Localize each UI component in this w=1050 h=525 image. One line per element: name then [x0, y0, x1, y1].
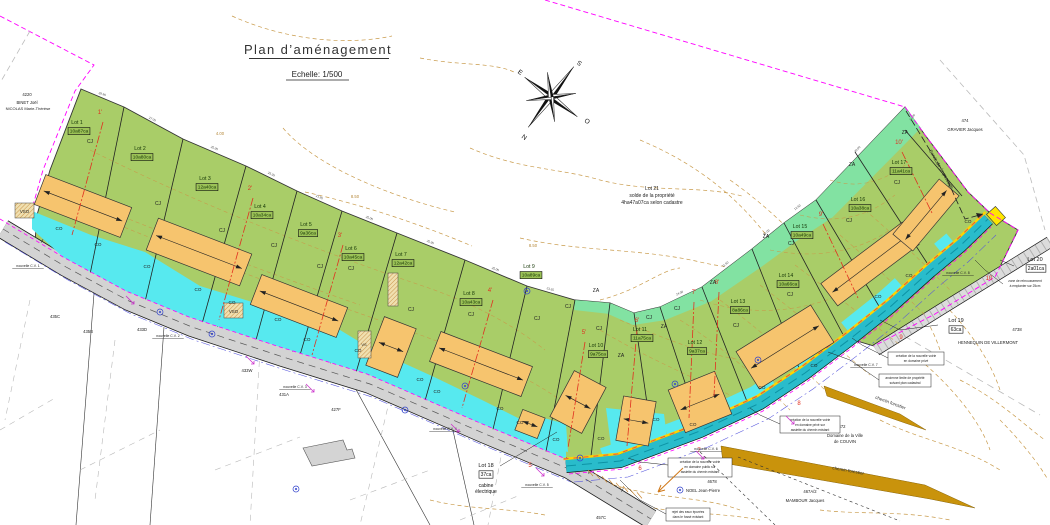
svg-text:CO: CO [434, 389, 441, 394]
svg-text:ZA: ZA [661, 324, 668, 330]
svg-text:Lot 8: Lot 8 [463, 291, 475, 297]
svg-text:CO: CO [304, 337, 311, 342]
svg-text:435B: 435B [83, 329, 93, 334]
svg-text:Lot 5: Lot 5 [300, 222, 312, 228]
svg-text:Echelle: 1/500: Echelle: 1/500 [292, 70, 343, 79]
svg-text:CJ: CJ [674, 306, 681, 312]
svg-text:431A: 431A [279, 392, 289, 397]
svg-text:nouvelle C.V. 2: nouvelle C.V. 2 [156, 334, 179, 338]
svg-text:GRAVIER Jacques: GRAVIER Jacques [947, 127, 982, 132]
svg-text:Lot 6: Lot 6 [345, 246, 357, 252]
svg-text:63ca: 63ca [951, 327, 962, 333]
svg-text:BINET Joël: BINET Joël [16, 100, 37, 105]
svg-text:CJ: CJ [565, 304, 572, 310]
svg-text:12a42ca: 12a42ca [394, 261, 413, 267]
svg-text:Lot 16: Lot 16 [851, 197, 866, 203]
svg-text:ZA: ZA [593, 288, 600, 294]
svg-text:nouvelle C.V. 5: nouvelle C.V. 5 [525, 483, 548, 487]
svg-text:10a87ca: 10a87ca [70, 129, 89, 135]
svg-text:Lot 14: Lot 14 [779, 273, 794, 279]
svg-text:CJ: CJ [894, 180, 901, 186]
svg-text:CJ: CJ [733, 323, 740, 329]
svg-text:nouvelle C.V. 7: nouvelle C.V. 7 [854, 363, 877, 367]
svg-text:en domaine privé: en domaine privé [904, 359, 929, 363]
svg-text:467A/2: 467A/2 [803, 489, 817, 494]
svg-text:CJ: CJ [534, 316, 541, 322]
svg-text:4678: 4678 [707, 479, 717, 484]
svg-text:10a45ca: 10a45ca [344, 255, 363, 261]
svg-text:4': 4' [488, 288, 492, 294]
svg-text:Lot 19: Lot 19 [948, 318, 963, 324]
svg-text:427F: 427F [331, 407, 341, 412]
svg-text:12a40ca: 12a40ca [198, 185, 217, 191]
svg-text:10a66ca: 10a66ca [779, 282, 798, 288]
svg-text:CO: CO [195, 287, 202, 292]
svg-text:9a75ca: 9a75ca [590, 352, 606, 358]
svg-text:assiette du chemin existant: assiette du chemin existant [681, 470, 720, 474]
svg-text:CJ: CJ [348, 266, 355, 272]
svg-text:10a34ca: 10a34ca [253, 213, 272, 219]
svg-text:CO: CO [56, 226, 63, 231]
svg-text:CO: CO [759, 385, 766, 390]
svg-text:MAMBOUR Jacques: MAMBOUR Jacques [786, 498, 825, 503]
svg-text:10a89ca: 10a89ca [522, 273, 541, 279]
svg-text:de COUVIN: de COUVIN [834, 439, 856, 444]
svg-text:8.50: 8.50 [529, 243, 538, 248]
svg-text:NOEL Jean-Pierre: NOEL Jean-Pierre [686, 488, 721, 493]
svg-text:10a49ca: 10a49ca [793, 233, 812, 239]
svg-text:suivant plan cadastral: suivant plan cadastral [890, 381, 921, 385]
svg-text:435C: 435C [50, 314, 60, 319]
svg-text:en domaine public sur: en domaine public sur [684, 465, 716, 469]
svg-text:dans le fossé existant: dans le fossé existant [673, 515, 704, 519]
svg-text:433W: 433W [242, 368, 253, 373]
svg-text:nouvelle C.V. 6: nouvelle C.V. 6 [694, 447, 717, 451]
svg-text:CJ: CJ [408, 307, 415, 313]
svg-text:2': 2' [248, 186, 252, 192]
svg-text:4.00: 4.00 [216, 131, 225, 136]
svg-text:CJ: CJ [468, 312, 475, 318]
svg-text:CJ: CJ [596, 326, 603, 332]
svg-text:ZA: ZA [618, 353, 625, 359]
svg-text:ZA: ZA [763, 234, 770, 240]
svg-text:CO: CO [417, 377, 424, 382]
svg-text:4738: 4738 [1012, 327, 1022, 332]
svg-text:HENNEQUIN DE VILLERMONT: HENNEQUIN DE VILLERMONT [958, 340, 1018, 345]
svg-text:NICOLAS Marie-Thérèse: NICOLAS Marie-Thérèse [6, 106, 51, 111]
svg-text:Lot 13: Lot 13 [731, 299, 746, 305]
svg-text:Lot 10: Lot 10 [589, 343, 604, 349]
svg-text:en domaine privé sur: en domaine privé sur [795, 423, 826, 427]
svg-text:CJ: CJ [317, 264, 324, 270]
svg-text:électrique: électrique [475, 489, 497, 495]
svg-text:Lot 12: Lot 12 [688, 340, 703, 346]
svg-text:11a75ca: 11a75ca [633, 336, 651, 342]
svg-text:8a86ca: 8a86ca [732, 308, 748, 314]
svg-text:nouvelle C.V. 8: nouvelle C.V. 8 [946, 271, 969, 275]
svg-text:CO: CO [653, 417, 660, 422]
svg-text:CO: CO [229, 300, 236, 305]
svg-text:assiette du chemin existant: assiette du chemin existant [791, 428, 830, 432]
svg-text:Lot 2: Lot 2 [134, 146, 146, 152]
svg-text:1': 1' [98, 110, 102, 116]
svg-text:Lot 9: Lot 9 [523, 264, 535, 270]
svg-text:CJ: CJ [788, 241, 795, 247]
svg-text:création de la nouvelle voirie: création de la nouvelle voirie [790, 418, 831, 422]
svg-text:Lot 20: Lot 20 [1027, 257, 1042, 263]
svg-text:CO: CO [517, 420, 524, 425]
svg-text:7': 7' [692, 290, 696, 296]
svg-text:Plan d’aménagement: Plan d’aménagement [244, 42, 392, 57]
svg-text:CO: CO [497, 406, 504, 411]
svg-text:10a43ca: 10a43ca [462, 300, 481, 306]
svg-text:8.50: 8.50 [351, 194, 360, 199]
svg-text:CO: CO [690, 422, 697, 427]
svg-text:CO: CO [811, 363, 818, 368]
svg-text:nouvelle C.V. 4: nouvelle C.V. 4 [433, 427, 456, 431]
svg-text:zone de rebroussement: zone de rebroussement [1008, 279, 1042, 283]
svg-text:solde de la propriété: solde de la propriété [629, 193, 675, 199]
svg-text:Lot 1: Lot 1 [71, 120, 83, 126]
svg-text:CO: CO [906, 273, 913, 278]
svg-text:Lot 17: Lot 17 [892, 160, 907, 166]
svg-text:10: 10 [986, 276, 993, 282]
svg-text:VSO: VSO [20, 209, 30, 214]
svg-text:ancienne limite de propriété: ancienne limite de propriété [885, 376, 924, 380]
svg-text:Lot 11: Lot 11 [633, 327, 647, 333]
svg-text:CJ: CJ [271, 243, 278, 249]
svg-text:433D: 433D [137, 327, 147, 332]
svg-text:CJ: CJ [646, 315, 653, 321]
svg-text:474: 474 [962, 118, 970, 123]
svg-text:6': 6' [635, 318, 639, 324]
svg-text:CO: CO [144, 264, 151, 269]
svg-text:nouvelle C.V. 3: nouvelle C.V. 3 [283, 385, 306, 389]
svg-text:Lot 18: Lot 18 [478, 463, 493, 469]
svg-text:CO: CO [965, 219, 972, 224]
svg-text:VSO: VSO [229, 309, 239, 314]
svg-text:à emplanter sur 25cm: à emplanter sur 25cm [1010, 284, 1041, 288]
svg-text:CJ: CJ [787, 292, 794, 298]
svg-text:Lot 15: Lot 15 [793, 224, 808, 230]
svg-text:9': 9' [819, 212, 823, 218]
svg-text:Lot 4: Lot 4 [254, 204, 266, 210]
svg-text:ZA: ZA [902, 130, 909, 136]
svg-text:Lot 21: Lot 21 [645, 186, 659, 192]
svg-text:10a80ca: 10a80ca [133, 155, 152, 161]
svg-text:37ca: 37ca [481, 472, 492, 478]
svg-text:3': 3' [338, 233, 342, 239]
svg-text:VS: VS [361, 342, 367, 347]
svg-text:création de la nouvelle voirie: création de la nouvelle voirie [680, 460, 721, 464]
svg-text:rejet des eaux épurées: rejet des eaux épurées [672, 510, 705, 514]
svg-text:CO: CO [275, 317, 282, 322]
svg-text:création de la nouvelle voirie: création de la nouvelle voirie [896, 354, 937, 358]
svg-text:nouvelle C.V. 1: nouvelle C.V. 1 [16, 264, 39, 268]
svg-text:CJ: CJ [87, 139, 94, 145]
svg-text:Lot 7: Lot 7 [395, 252, 407, 258]
svg-text:4ha47a07ca selon cadastre: 4ha47a07ca selon cadastre [621, 200, 683, 206]
svg-text:457C: 457C [596, 515, 606, 520]
svg-text:4220: 4220 [22, 92, 32, 97]
svg-text:CO: CO [875, 294, 882, 299]
svg-text:2a01ca: 2a01ca [1028, 266, 1045, 272]
svg-text:11a41ca: 11a41ca [892, 169, 910, 175]
svg-text:ZA: ZA [849, 162, 856, 168]
svg-text:CJ: CJ [219, 228, 226, 234]
svg-text:CO: CO [598, 436, 605, 441]
svg-text:CJ: CJ [846, 218, 853, 224]
svg-text:5': 5' [582, 330, 586, 336]
svg-text:10a38ca: 10a38ca [851, 206, 870, 212]
svg-text:CO: CO [355, 348, 362, 353]
svg-text:ZA: ZA [710, 280, 717, 286]
svg-text:9a36ca: 9a36ca [300, 231, 316, 237]
svg-text:Domaine de la Ville: Domaine de la Ville [827, 433, 864, 438]
svg-text:CJ: CJ [155, 201, 162, 207]
svg-text:10': 10' [895, 140, 903, 146]
svg-text:CO: CO [553, 437, 560, 442]
svg-text:Lot 3: Lot 3 [199, 176, 211, 182]
svg-text:9a37ca: 9a37ca [689, 349, 705, 355]
svg-text:CO: CO [95, 242, 102, 247]
